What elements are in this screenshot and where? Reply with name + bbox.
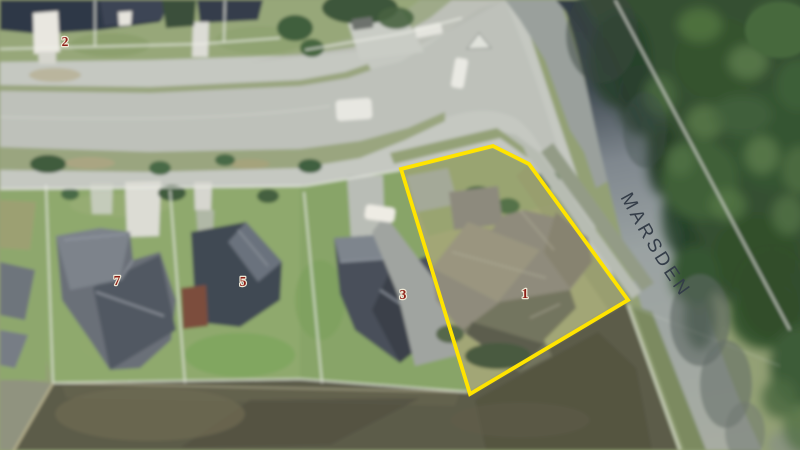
svg-text:7: 7 bbox=[114, 273, 121, 288]
svg-text:5: 5 bbox=[240, 274, 247, 289]
svg-text:1: 1 bbox=[522, 286, 529, 301]
svg-text:3: 3 bbox=[400, 287, 407, 302]
svg-text:2: 2 bbox=[62, 34, 69, 49]
